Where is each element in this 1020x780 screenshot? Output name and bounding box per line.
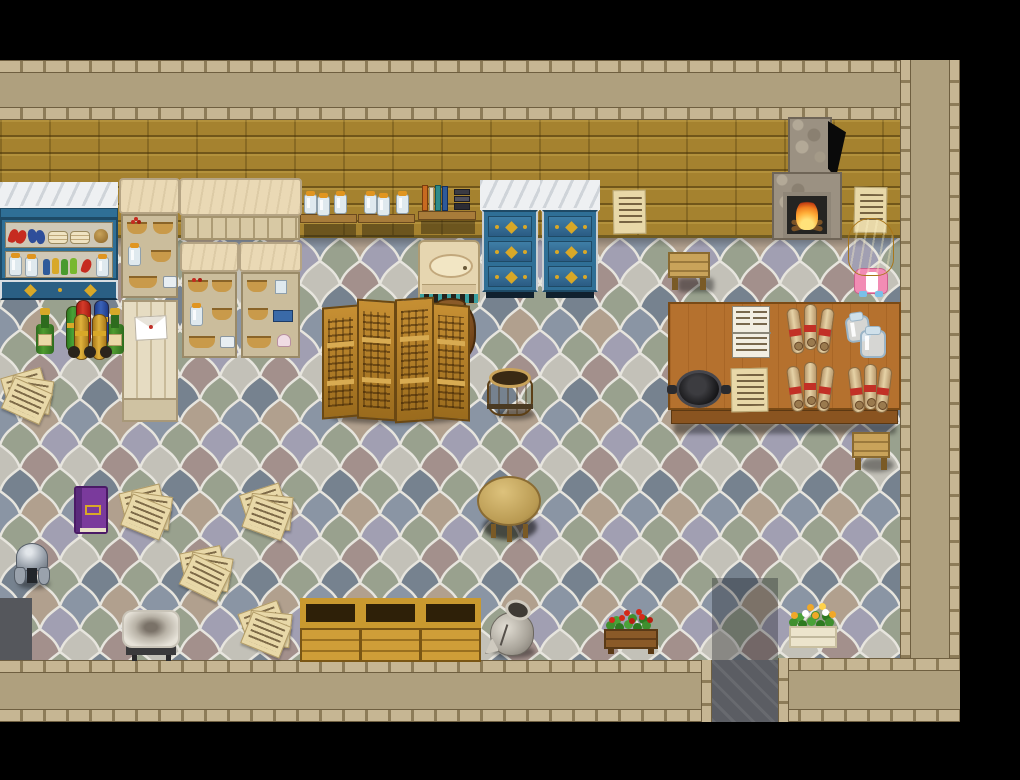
blue-fish bbox=[35, 229, 47, 245]
wall-brick-trim bbox=[900, 60, 911, 722]
stool-leg bbox=[700, 278, 706, 290]
villager-character[interactable] bbox=[846, 218, 896, 298]
box-blue bbox=[273, 310, 293, 322]
screen-panel bbox=[432, 302, 470, 421]
glass-jar bbox=[377, 196, 390, 216]
crate-opening bbox=[420, 598, 481, 628]
letter-board[interactable] bbox=[122, 300, 178, 422]
jar-orange bbox=[9, 256, 22, 276]
panel-lattice bbox=[438, 315, 464, 409]
gold-ornament bbox=[505, 271, 518, 284]
blue-dresser-right bbox=[540, 180, 600, 300]
stool-leg bbox=[672, 278, 678, 290]
red-pepper bbox=[80, 258, 93, 274]
paper-pile bbox=[2, 364, 62, 420]
gold-ornament bbox=[565, 271, 578, 284]
gold-ornament bbox=[505, 221, 518, 234]
lace-cover bbox=[480, 180, 540, 210]
drawer-knob bbox=[523, 250, 527, 254]
paper-pile bbox=[180, 543, 240, 599]
character-shoe bbox=[859, 291, 867, 297]
basket-berries bbox=[127, 222, 147, 234]
open-ledger[interactable] bbox=[732, 306, 770, 358]
shelf-plank bbox=[418, 211, 476, 220]
book-clasp bbox=[85, 505, 101, 515]
table-stool bbox=[852, 432, 894, 474]
book-spine bbox=[429, 187, 434, 211]
carved-frieze bbox=[181, 216, 300, 240]
basket-loaves bbox=[189, 336, 215, 348]
glass-jar bbox=[190, 306, 203, 326]
scroll bbox=[816, 307, 835, 354]
glass-jar-large bbox=[860, 330, 886, 358]
bucket bbox=[487, 368, 537, 422]
wall-brick-trim bbox=[701, 660, 712, 722]
helmet-cheek-guard bbox=[14, 567, 26, 585]
screen-panel bbox=[357, 299, 396, 422]
cabinet-top bbox=[179, 178, 302, 216]
drawer-knob bbox=[555, 225, 559, 229]
paper-pile bbox=[120, 482, 180, 538]
drawer-base bbox=[0, 280, 118, 300]
basket-goods bbox=[247, 280, 267, 292]
planter-red-flowers bbox=[602, 613, 660, 655]
book-spine bbox=[442, 186, 448, 211]
panel-lattice bbox=[401, 309, 428, 411]
drawer bbox=[488, 241, 532, 262]
dresser-body bbox=[542, 210, 598, 292]
cushion-leg bbox=[132, 655, 137, 661]
wine-bottle bbox=[34, 308, 56, 354]
scroll-bundle bbox=[849, 364, 893, 416]
table-leg bbox=[507, 526, 512, 542]
shelf-box bbox=[121, 214, 178, 298]
drawer bbox=[488, 266, 532, 287]
basket-bread bbox=[153, 222, 173, 234]
exit-west[interactable] bbox=[0, 598, 32, 662]
shelf-shadow bbox=[421, 221, 475, 234]
ledger-lines bbox=[753, 311, 767, 329]
drawer-knob bbox=[495, 225, 499, 229]
cushion-seat bbox=[122, 610, 180, 662]
plate-stack bbox=[70, 231, 90, 244]
crate-front bbox=[300, 628, 361, 662]
shelf-shadow bbox=[304, 224, 356, 237]
drawer-knob bbox=[523, 225, 527, 229]
drawer-knob bbox=[583, 275, 587, 279]
drawer-knob bbox=[555, 275, 559, 279]
bottle-blue bbox=[43, 259, 50, 275]
scroll bbox=[786, 365, 805, 412]
basket-bread bbox=[151, 250, 171, 262]
cups bbox=[163, 276, 177, 288]
bucket-hoop bbox=[487, 404, 533, 409]
bolt-gold bbox=[92, 314, 107, 360]
dresser-body bbox=[482, 210, 538, 292]
shelf-row-food bbox=[5, 222, 113, 248]
wall-brick-trim bbox=[0, 709, 712, 722]
panel-lattice bbox=[328, 317, 353, 407]
drawer-knob bbox=[523, 275, 527, 279]
washstand bbox=[418, 240, 480, 304]
cushion-leg bbox=[166, 655, 171, 661]
drawer-knob bbox=[58, 288, 62, 292]
glass-jar bbox=[317, 196, 330, 216]
bottle-gold bbox=[52, 258, 59, 274]
table-leg bbox=[491, 524, 496, 538]
handwriting bbox=[8, 384, 47, 419]
scroll bbox=[847, 366, 866, 413]
folding-screen bbox=[322, 298, 470, 428]
wall-brick-trim bbox=[778, 709, 960, 722]
shelf-shadow bbox=[362, 224, 414, 237]
crown-molding bbox=[0, 208, 118, 218]
jar-pale bbox=[96, 257, 109, 277]
crate-front bbox=[360, 628, 421, 662]
scroll-bundle bbox=[787, 362, 839, 416]
chimney bbox=[788, 117, 832, 179]
jar-label bbox=[25, 257, 38, 277]
dresser-feet bbox=[486, 292, 534, 298]
ledger-divider bbox=[733, 332, 771, 334]
character-shoe bbox=[875, 291, 883, 297]
book-stack bbox=[454, 196, 470, 202]
carved-cabinet bbox=[179, 178, 302, 242]
glass-jar bbox=[128, 246, 141, 266]
helmet-cheek-guard bbox=[38, 567, 50, 585]
red-flowers bbox=[609, 617, 615, 623]
gold-ornament bbox=[84, 284, 97, 297]
exit-south-shadow bbox=[712, 578, 778, 662]
stool-leg bbox=[881, 458, 887, 470]
scroll bbox=[804, 362, 817, 408]
basket-loaves bbox=[247, 336, 271, 348]
gold-ornament bbox=[24, 284, 37, 297]
handwriting bbox=[127, 500, 166, 534]
plate-stack bbox=[48, 231, 68, 244]
dresser-feet bbox=[546, 292, 594, 298]
blue-display-shelf bbox=[0, 182, 118, 302]
book-stack bbox=[454, 203, 470, 210]
stool-top bbox=[668, 252, 710, 278]
basket-bread bbox=[212, 308, 232, 320]
paper-pile bbox=[241, 482, 301, 538]
jar-pair bbox=[128, 246, 148, 266]
wash-basin bbox=[429, 254, 473, 278]
drawer bbox=[548, 241, 592, 262]
scroll-bundle bbox=[787, 304, 839, 358]
bottle-label bbox=[38, 334, 52, 346]
round-table-top bbox=[477, 476, 541, 526]
glass-jar bbox=[364, 194, 377, 214]
drawer-knob bbox=[495, 275, 499, 279]
bottle-cap bbox=[40, 308, 50, 315]
wall-brick-trim bbox=[949, 60, 960, 722]
crate bbox=[360, 598, 421, 662]
shelf-row-bottles bbox=[5, 251, 113, 278]
basket-bread bbox=[212, 280, 232, 292]
helmet-face-gap bbox=[27, 568, 37, 583]
ledger-lines bbox=[736, 337, 767, 355]
glass-jar-pair bbox=[846, 314, 888, 360]
screen-panel bbox=[322, 304, 359, 419]
glass-jar bbox=[334, 194, 347, 214]
board-base bbox=[122, 398, 178, 422]
crate bbox=[300, 598, 361, 662]
character-hair bbox=[848, 218, 894, 276]
purple-book[interactable] bbox=[74, 486, 108, 534]
blue-dresser-left bbox=[480, 180, 540, 300]
berries bbox=[131, 220, 135, 224]
pantry-shelf-1 bbox=[119, 178, 180, 302]
lace-curtain bbox=[0, 182, 118, 208]
planter-foot bbox=[608, 649, 614, 654]
yellow-flowers bbox=[791, 612, 798, 619]
shelf-body bbox=[0, 218, 118, 280]
top-wall-band bbox=[0, 60, 960, 120]
planter-foot bbox=[648, 649, 654, 654]
cake bbox=[277, 334, 291, 347]
gold-ornament bbox=[505, 246, 518, 259]
scroll bbox=[816, 365, 835, 412]
sack bbox=[94, 229, 108, 243]
drawer-knob bbox=[555, 250, 559, 254]
sheet-lines bbox=[737, 374, 765, 406]
planter-box bbox=[604, 629, 658, 649]
paper-pile bbox=[240, 600, 300, 656]
bottom-wall-right bbox=[778, 658, 960, 722]
stool-leg bbox=[855, 458, 861, 470]
right-wall bbox=[900, 60, 960, 722]
planter-yellow-flowers bbox=[786, 606, 840, 650]
small-stool bbox=[668, 252, 714, 294]
round-table bbox=[477, 476, 543, 546]
pantry-shelf-3 bbox=[239, 242, 302, 362]
berries bbox=[192, 278, 196, 282]
cabinet-top bbox=[119, 178, 180, 214]
pantry-shelf-2 bbox=[180, 242, 239, 362]
bolt-feet bbox=[68, 346, 80, 358]
bottle-green bbox=[70, 258, 77, 274]
screen-panel bbox=[395, 297, 434, 424]
handwriting bbox=[185, 560, 224, 596]
iron-helmet bbox=[12, 541, 54, 593]
firebox bbox=[783, 192, 831, 238]
drawer-knob bbox=[583, 225, 587, 229]
notice-text-scribble bbox=[619, 197, 642, 223]
shelf-box bbox=[241, 272, 300, 358]
book-spine-edge bbox=[76, 488, 82, 532]
book-spine bbox=[422, 185, 428, 211]
letter-envelope[interactable] bbox=[134, 315, 167, 341]
basket-bread bbox=[248, 308, 268, 320]
cushion-top bbox=[122, 610, 180, 648]
wall-notice-left[interactable] bbox=[613, 190, 647, 235]
shelf-box bbox=[182, 272, 237, 358]
crate-front bbox=[420, 628, 481, 662]
bottle-green bbox=[61, 259, 68, 275]
gold-ornament bbox=[565, 221, 578, 234]
drawer bbox=[548, 216, 592, 237]
exit-south[interactable] bbox=[712, 660, 778, 722]
crate-opening bbox=[360, 598, 421, 628]
cups bbox=[220, 336, 235, 348]
stool-shadow bbox=[860, 458, 894, 472]
scroll bbox=[804, 304, 817, 350]
handwriting bbox=[247, 618, 286, 652]
bucket-mouth bbox=[489, 368, 531, 388]
pan-handle bbox=[721, 385, 731, 394]
glass-jar bbox=[396, 194, 409, 214]
fire-flame bbox=[796, 200, 818, 230]
chimney-shadow bbox=[828, 121, 846, 177]
handwriting bbox=[248, 501, 286, 534]
lace-cover bbox=[540, 180, 600, 210]
wall-brick-trim bbox=[778, 658, 789, 722]
basket-berries bbox=[188, 280, 208, 292]
drawer-knob bbox=[583, 250, 587, 254]
book-pages bbox=[80, 528, 106, 532]
ledger-lines bbox=[736, 311, 750, 329]
book-stack bbox=[454, 189, 470, 195]
table-leg bbox=[523, 524, 528, 538]
basket-loaves bbox=[129, 276, 157, 288]
fabric-bolts bbox=[66, 298, 124, 360]
crate-opening bbox=[300, 598, 361, 628]
jar-pair bbox=[190, 306, 210, 326]
glass-jar bbox=[304, 194, 317, 214]
stool-shadow bbox=[678, 278, 714, 292]
price-sheet[interactable] bbox=[731, 368, 769, 413]
cabinet-top bbox=[180, 242, 239, 272]
drawer bbox=[488, 216, 532, 237]
book-spine bbox=[435, 185, 441, 211]
iron-pan bbox=[676, 370, 722, 408]
planter-box bbox=[789, 626, 837, 648]
jar-small bbox=[275, 280, 287, 294]
wall-book-shelf bbox=[418, 181, 478, 241]
gold-ornament bbox=[565, 246, 578, 259]
scroll bbox=[874, 366, 893, 413]
cabinet-top bbox=[239, 242, 302, 272]
wall-brick-trim bbox=[778, 658, 960, 671]
bottom-wall-left bbox=[0, 660, 712, 722]
scroll bbox=[786, 307, 805, 354]
drain-dot bbox=[463, 266, 467, 270]
drawer bbox=[548, 266, 592, 287]
drawer-knob bbox=[495, 250, 499, 254]
wall-jar-shelf bbox=[300, 184, 418, 242]
panel-lattice bbox=[363, 311, 390, 409]
stand-band bbox=[422, 284, 476, 293]
stool-top bbox=[852, 432, 890, 458]
pan-handle bbox=[667, 385, 677, 394]
broken-vase bbox=[485, 598, 541, 662]
wall-brick-trim bbox=[0, 60, 960, 73]
crate bbox=[420, 598, 481, 662]
game-viewport bbox=[0, 0, 1020, 780]
storage-crates bbox=[300, 598, 482, 662]
